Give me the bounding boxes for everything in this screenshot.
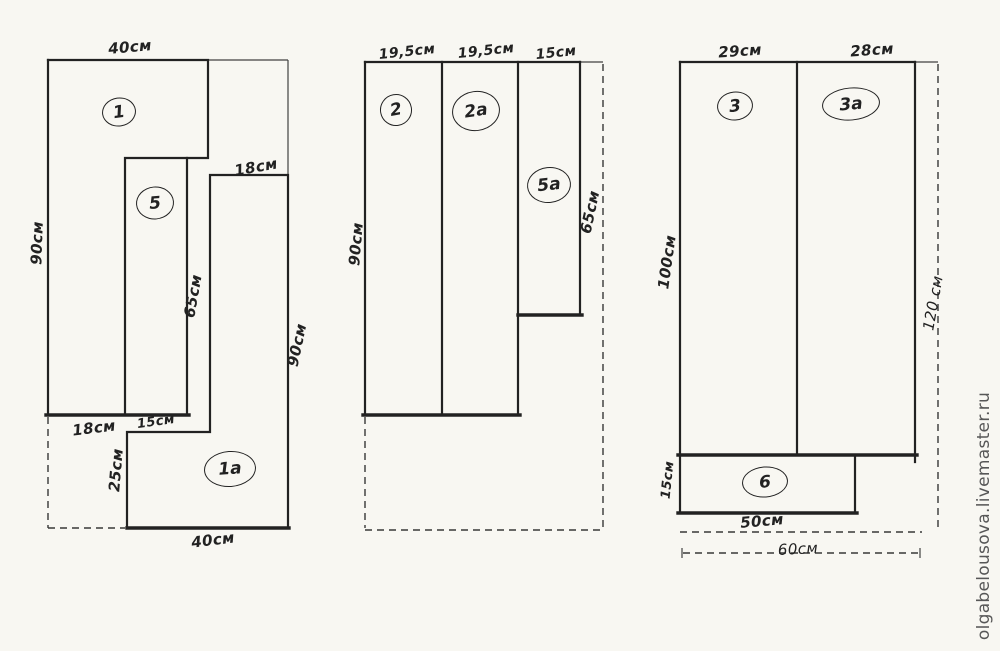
panel1-pieces (46, 60, 289, 528)
pattern-sheet: 40см 90см 1 5 18см 65см 90см 18см 15см 2… (0, 0, 1000, 651)
p1-dim-step-height: 25см (105, 447, 127, 492)
p1-dim-left-height: 90см (27, 221, 47, 265)
panel2-pieces (363, 62, 603, 530)
watermark-text: olgabelousova.livemaster.ru (974, 392, 994, 640)
panel3-pieces (678, 62, 938, 558)
panel2-dashed-boundary (365, 64, 603, 530)
p1-dim-top-width: 40см (107, 36, 152, 58)
p2-dim-left-height: 90см (345, 221, 367, 266)
p3-dim-6-width: 50см (739, 510, 784, 532)
p3-dim-top-3: 29см (718, 40, 763, 61)
p3-dim-top-3a: 28см (850, 39, 895, 60)
p3-dim-overall-width: 60см (777, 539, 818, 559)
